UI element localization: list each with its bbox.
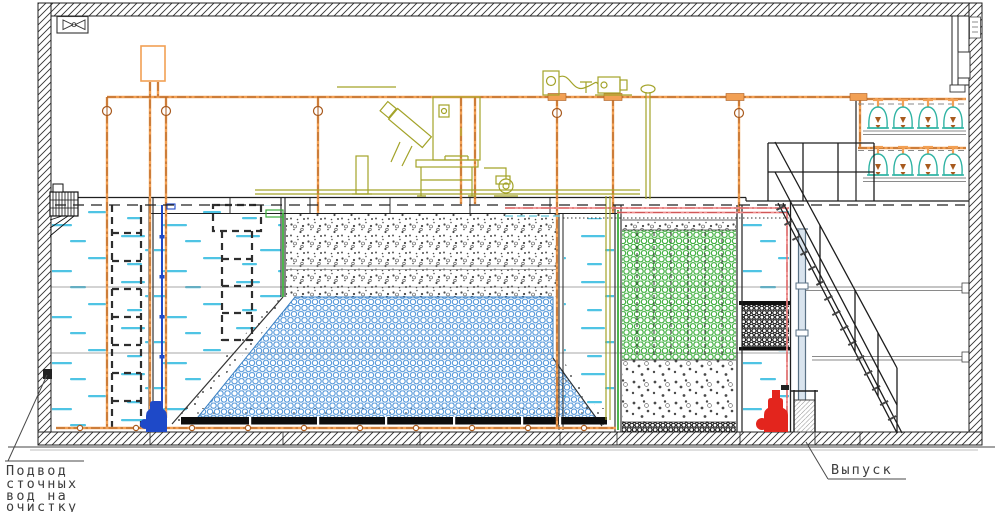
outlet-chamber (794, 400, 815, 432)
right-wall (969, 3, 982, 445)
air-expansion-tank (141, 46, 165, 81)
inlet-wall-stub (43, 369, 52, 379)
blower-unit (892, 147, 914, 176)
outlet-standpipe (791, 229, 818, 432)
ventilation-symbol (57, 17, 88, 34)
blower-station (856, 100, 966, 201)
treatment-plant-section-drawing: Подвод сточных вод на очистку Выпуск (0, 0, 1000, 512)
ground-line (8, 447, 995, 450)
biofilter-section (622, 220, 736, 432)
blower-unit (942, 147, 964, 176)
blower-unit (917, 147, 939, 176)
screen-press-unit (337, 87, 431, 194)
gravel-top-layer (286, 213, 557, 297)
control-cabinet (433, 97, 480, 160)
drainage-media-strip (622, 422, 736, 432)
top-wall (38, 3, 982, 16)
outlet-label-text: Выпуск (831, 462, 893, 478)
valve-icon (103, 106, 744, 118)
biofilter-media (622, 230, 736, 360)
biofilter-gravel-support (622, 360, 736, 422)
inlet-label-line4: очистку (6, 499, 78, 512)
wall-tag (970, 17, 981, 38)
clarifier-media-block (739, 301, 790, 351)
wall-column (950, 16, 970, 92)
drawing-svg: Подвод сточных вод на очистку Выпуск (0, 0, 1000, 512)
floor-slab (38, 432, 982, 445)
transfer-pump (484, 168, 518, 196)
dosing-unit (543, 71, 655, 199)
aeration-diffuser-bar (181, 417, 607, 426)
platform-railing (768, 143, 874, 201)
